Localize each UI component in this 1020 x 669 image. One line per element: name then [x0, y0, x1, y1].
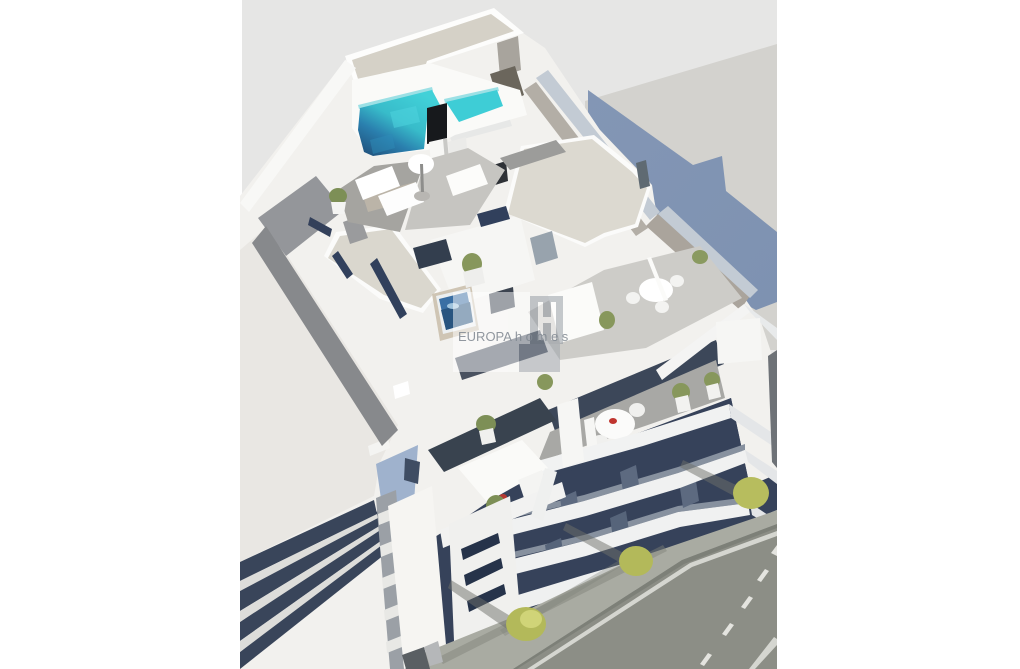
svg-text:EUROPA h o m e s: EUROPA h o m e s	[458, 329, 569, 344]
